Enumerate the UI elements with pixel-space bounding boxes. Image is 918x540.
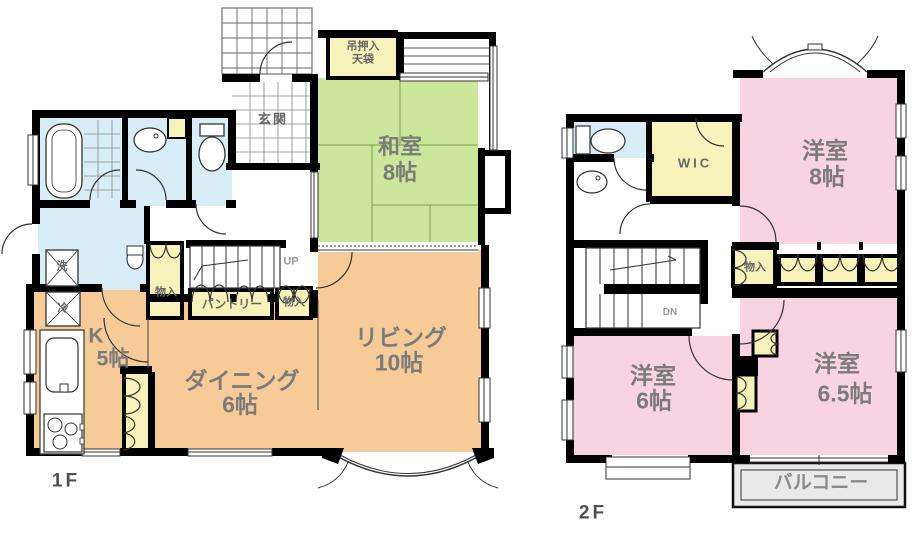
fridge-label: 冷 [58,304,69,315]
powder-cabinet [168,118,186,138]
toilet-icon-2f [591,129,625,153]
bedroom65-name: 洋室 [814,353,860,376]
up-label: UP [283,257,298,268]
closet-strip-b [124,372,150,452]
floor2-label: 2F [579,504,607,523]
closet-c-label: 物入 [744,263,766,274]
toilet-icon-1f [199,137,225,171]
dining-size: 6帖 [222,394,258,417]
bay-window [318,448,498,488]
stairs-1f [190,246,280,288]
hanging-closet-label-2: 天袋 [352,55,374,66]
washbasin-icon-2f [577,171,607,193]
pantry-label: パントリー [202,298,263,310]
living-size: 10帖 [375,352,424,375]
entrance-label: 玄関 [258,113,288,126]
dn-label: DN [663,308,677,318]
floorplan: 吊押入 天袋 玄関 和室 8帖 リビング 10帖 ダイニング 6帖 K 5帖 パ… [0,0,918,540]
bedroom6-name: 洋室 [630,365,676,388]
closet-a-label: 物入 [155,288,177,299]
floorplan-drawing [0,0,918,540]
bow-window [752,36,878,72]
bedroom8-size: 8帖 [809,166,845,189]
washbasin-icon [134,128,166,152]
balcony-label: バルコニー [774,474,869,493]
sliding-partition [318,242,478,252]
washitsu-name: 和室 [378,136,422,158]
wic-label: WIC [678,157,712,170]
living-name: リビング [355,327,447,350]
toilet-tank-2f [576,126,590,154]
floor1-label: 1F [52,472,80,491]
bedroom65-size: 6.5帖 [818,383,873,406]
stairs-2f [586,248,700,328]
closet-b-label: 物入 [283,298,305,309]
toilet-tank-icon [200,124,224,136]
hanging-closet-label-1: 吊押入 [347,42,380,53]
bedroom6-size: 6帖 [636,390,672,413]
washitsu-size: 8帖 [383,162,417,184]
bedroom8-name: 洋室 [802,140,848,163]
washer-label: 洗 [57,262,68,273]
kitchen-size: 5帖 [97,349,130,370]
kitchen-name: K [88,326,103,347]
dining-name: ダイニング [185,370,300,393]
